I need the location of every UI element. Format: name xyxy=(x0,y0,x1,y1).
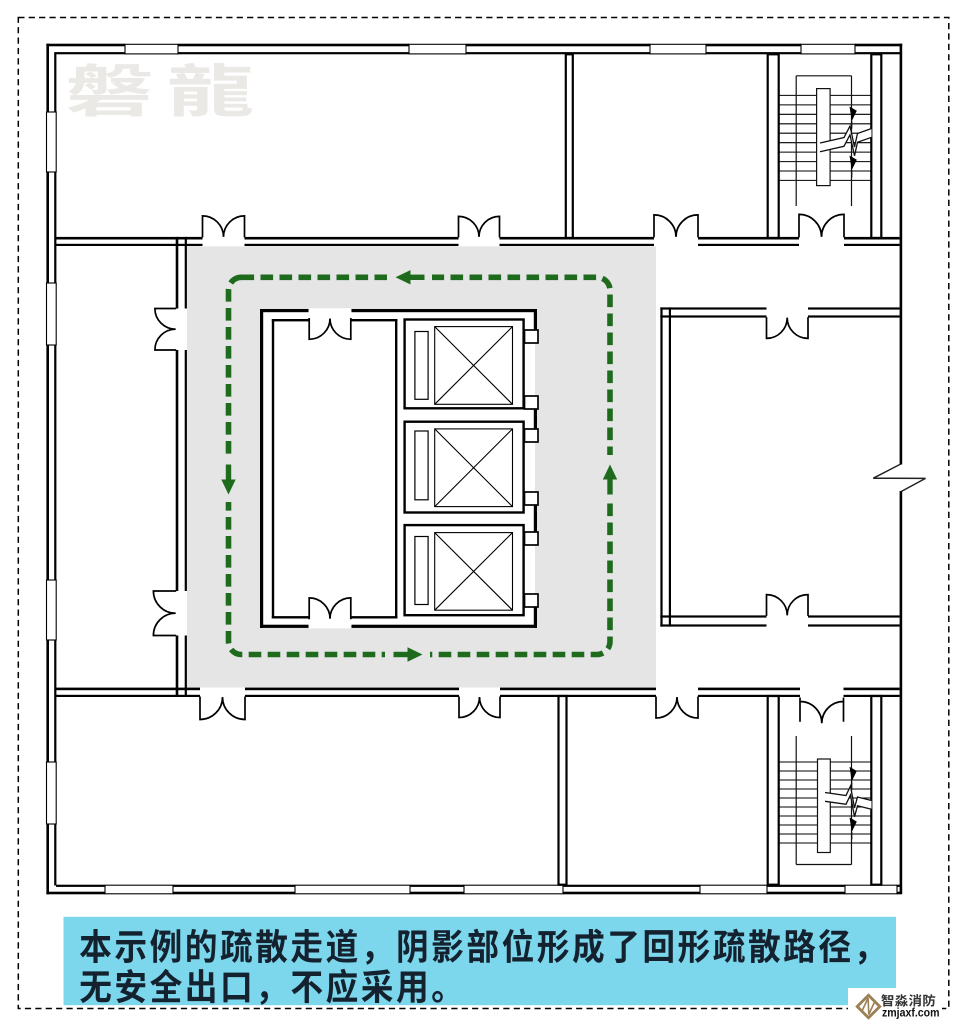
svg-text:zmjaxf.com: zmjaxf.com xyxy=(882,1006,940,1020)
